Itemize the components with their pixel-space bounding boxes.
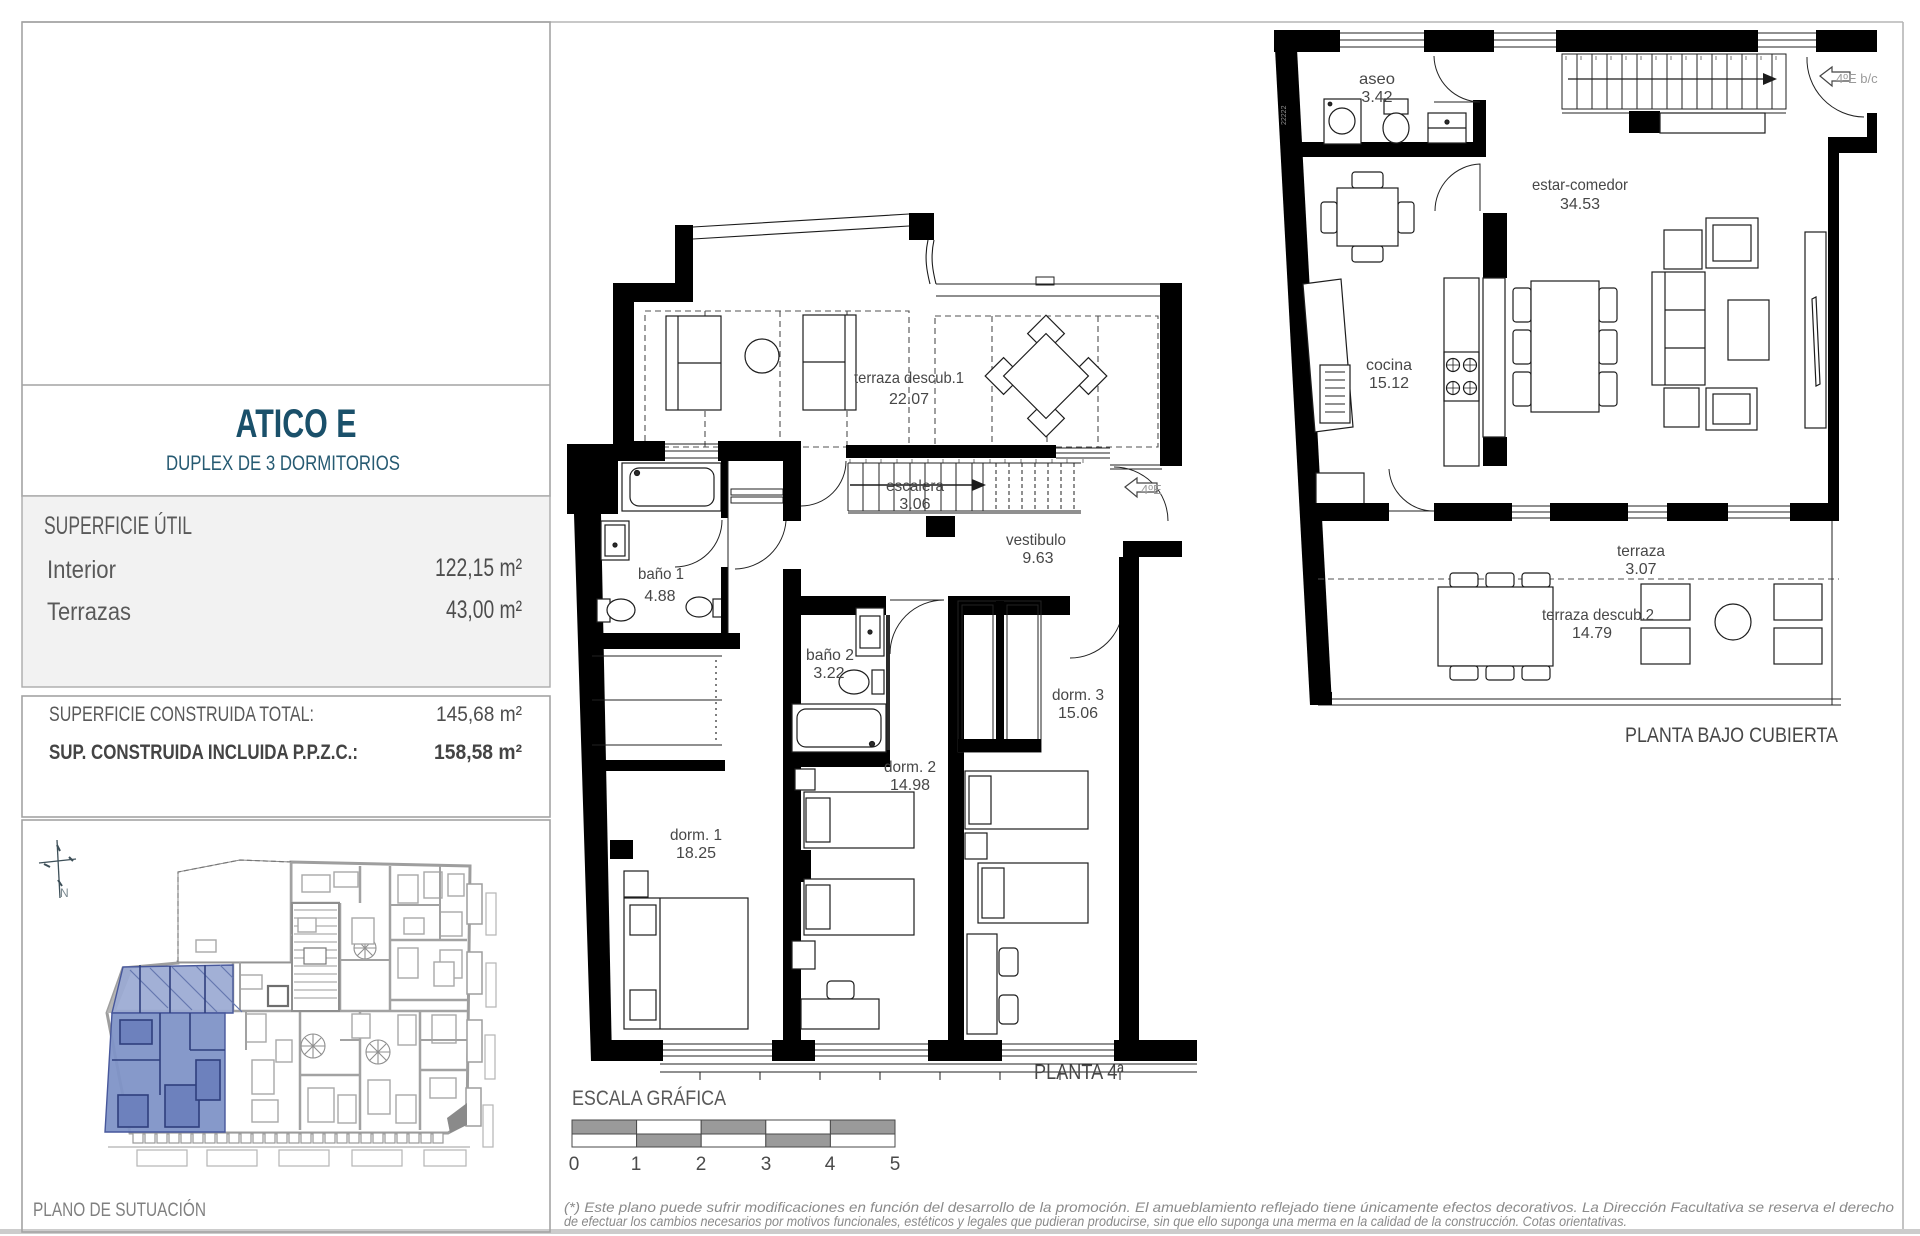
svg-text:terraza descub.1: terraza descub.1	[854, 370, 964, 387]
svg-text:15.12: 15.12	[1369, 375, 1409, 392]
svg-text:dorm. 2: dorm. 2	[884, 759, 936, 776]
svg-text:dorm. 1: dorm. 1	[670, 827, 722, 844]
svg-text:158,58 m²: 158,58 m²	[434, 741, 522, 764]
svg-text:baño 1: baño 1	[638, 566, 684, 583]
svg-text:SUPERFICIE ÚTIL: SUPERFICIE ÚTIL	[44, 511, 192, 540]
svg-text:baño 2: baño 2	[806, 647, 854, 664]
svg-text:3.06: 3.06	[899, 496, 930, 513]
svg-text:SUPERFICIE CONSTRUIDA TOTAL:: SUPERFICIE CONSTRUIDA TOTAL:	[49, 703, 314, 726]
svg-text:terraza descub.2: terraza descub.2	[1542, 607, 1654, 624]
svg-text:SUP. CONSTRUIDA INCLUIDA P.P.Z: SUP. CONSTRUIDA INCLUIDA P.P.Z.C.:	[49, 741, 358, 764]
svg-text:2: 2	[696, 1154, 707, 1175]
svg-text:DUPLEX DE 3 DORMITORIOS: DUPLEX DE 3 DORMITORIOS	[166, 452, 400, 475]
svg-text:cocina: cocina	[1366, 357, 1412, 374]
svg-text:18.25: 18.25	[676, 845, 716, 862]
svg-text:122,15 m²: 122,15 m²	[435, 554, 522, 582]
svg-text:Interior: Interior	[47, 556, 116, 584]
svg-text:de efectuar los cambios necesa: de efectuar los cambios necesarios por m…	[564, 1213, 1627, 1229]
svg-text:4ºE: 4ºE	[1141, 482, 1162, 497]
svg-text:N: N	[60, 886, 69, 900]
svg-text:4ºE b/c: 4ºE b/c	[1836, 71, 1878, 86]
svg-text:14.98: 14.98	[890, 777, 930, 794]
svg-text:PLANTA BAJO CUBIERTA: PLANTA BAJO CUBIERTA	[1625, 724, 1838, 747]
svg-text:1: 1	[631, 1154, 642, 1175]
svg-text:4.88: 4.88	[644, 588, 675, 605]
svg-text:ATICO E: ATICO E	[236, 402, 357, 446]
svg-text:9.63: 9.63	[1022, 550, 1053, 567]
svg-text:5: 5	[890, 1154, 901, 1175]
svg-text:34.53: 34.53	[1560, 196, 1600, 213]
svg-text:dorm. 3: dorm. 3	[1052, 687, 1104, 704]
svg-text:3.22: 3.22	[813, 665, 844, 682]
svg-text:ESCALA GRÁFICA: ESCALA GRÁFICA	[572, 1087, 726, 1110]
svg-text:PLANO DE SUTUACIÓN: PLANO DE SUTUACIÓN	[33, 1199, 206, 1221]
svg-text:3: 3	[761, 1154, 772, 1175]
svg-text:3.07: 3.07	[1625, 561, 1656, 578]
svg-text:terraza: terraza	[1617, 543, 1665, 560]
svg-text:PLANTA 4ª: PLANTA 4ª	[1034, 1061, 1124, 1084]
svg-text:145,68 m²: 145,68 m²	[436, 703, 522, 726]
svg-text:22222: 22222	[1281, 105, 1288, 125]
svg-text:14.79: 14.79	[1572, 625, 1612, 642]
svg-text:vestibulo: vestibulo	[1006, 532, 1066, 549]
svg-text:15.06: 15.06	[1058, 705, 1098, 722]
svg-text:3.42: 3.42	[1361, 89, 1392, 106]
svg-text:estar-comedor: estar-comedor	[1532, 177, 1629, 194]
svg-text:43,00 m²: 43,00 m²	[446, 596, 522, 624]
svg-text:4: 4	[825, 1154, 836, 1175]
svg-text:22.07: 22.07	[889, 391, 929, 408]
svg-text:escalera: escalera	[886, 478, 944, 495]
svg-text:0: 0	[569, 1154, 580, 1175]
svg-text:Terrazas: Terrazas	[47, 598, 131, 626]
svg-text:aseo: aseo	[1359, 71, 1395, 88]
